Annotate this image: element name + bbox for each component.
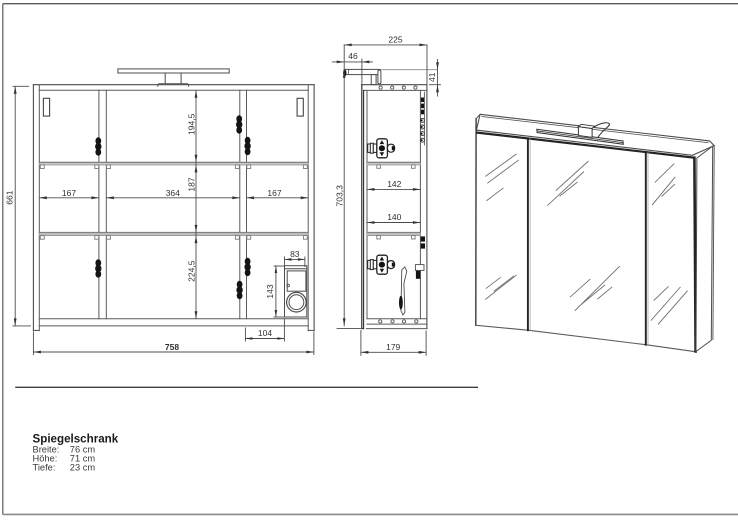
svg-text:225: 225 bbox=[388, 35, 402, 45]
svg-text:179: 179 bbox=[386, 342, 400, 352]
svg-text:661: 661 bbox=[5, 190, 15, 204]
svg-text:194,5: 194,5 bbox=[186, 113, 196, 135]
svg-text:140: 140 bbox=[387, 212, 401, 222]
svg-text:167: 167 bbox=[267, 188, 281, 198]
svg-text:143: 143 bbox=[265, 284, 275, 298]
svg-text:187: 187 bbox=[186, 177, 196, 191]
svg-text:364: 364 bbox=[166, 188, 180, 198]
svg-text:23 cm: 23 cm bbox=[70, 463, 96, 473]
svg-text:46: 46 bbox=[348, 51, 358, 61]
svg-text:703,3: 703,3 bbox=[334, 185, 344, 207]
svg-text:142: 142 bbox=[387, 179, 401, 189]
svg-text:104: 104 bbox=[258, 328, 272, 338]
svg-text:167: 167 bbox=[62, 188, 76, 198]
svg-text:41: 41 bbox=[427, 72, 437, 82]
svg-text:83: 83 bbox=[290, 249, 300, 259]
svg-text:758: 758 bbox=[165, 342, 179, 352]
svg-text:224,5: 224,5 bbox=[186, 260, 196, 282]
svg-text:Tiefe:: Tiefe: bbox=[33, 463, 56, 473]
